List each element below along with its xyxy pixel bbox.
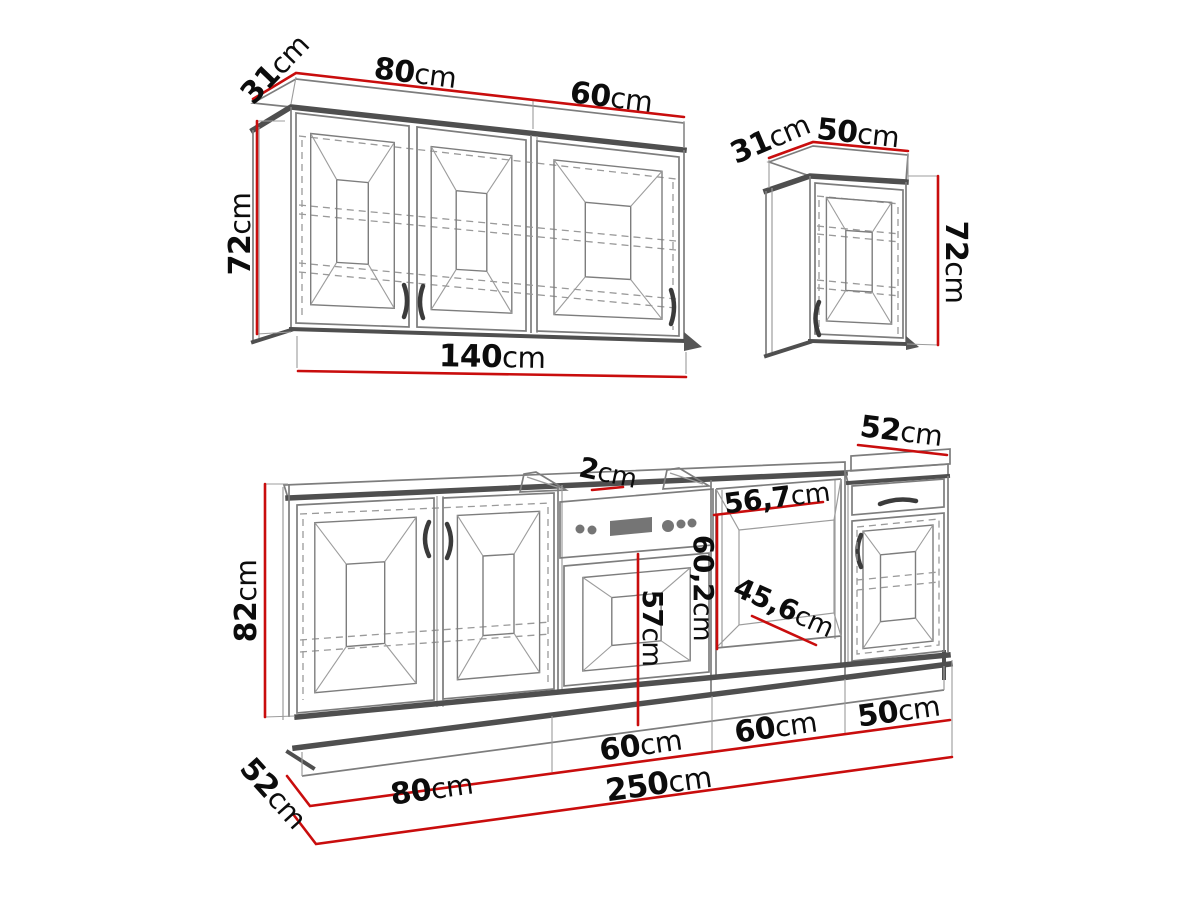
panel-line	[554, 277, 585, 315]
dim-label-oven-door-height: 57cm	[636, 589, 669, 666]
panel-line	[583, 646, 612, 672]
dim-label-wall-triple-right-width: 60cm	[568, 75, 654, 120]
dim-label-base-height: 82cm	[229, 560, 264, 643]
wall-single-dimensions: 31cm 50cm 72cm	[725, 107, 973, 345]
dim-label-section-2: 60cm	[597, 723, 684, 769]
base-double-door-1	[297, 498, 434, 713]
wall-triple-door-gap	[409, 125, 417, 327]
panel-line	[815, 183, 903, 338]
oven-knob-icon	[588, 526, 597, 535]
panel-line	[583, 578, 612, 598]
dim-label-wall-single-width: 50cm	[815, 112, 901, 155]
wall-triple-dimensions: 31cm 80cm 60cm 72cm 140cm	[223, 27, 686, 377]
panel-line	[514, 633, 540, 672]
panel-line	[311, 134, 395, 309]
wall-single-shelf-1	[817, 226, 900, 242]
wall-cabinet-triple	[253, 79, 702, 351]
dim-label-wall-triple-total: 140cm	[439, 338, 546, 376]
kitchen-cabinet-dimension-diagram: 31cm 80cm 60cm 72cm 140cm 31cm 50cm 72cm	[0, 0, 1200, 900]
dim-label-section-4: 50cm	[855, 689, 942, 735]
dim-label-total-width: 250cm	[603, 759, 714, 809]
plinth-left-side	[288, 752, 313, 768]
panel-line	[457, 515, 483, 556]
dim-label-worktop-thickness: 2cm	[576, 451, 640, 495]
dim-label-wall-single-height: 72cm	[938, 221, 973, 304]
oven-display	[610, 517, 652, 536]
wall-triple-door-2	[417, 127, 526, 331]
wall-single-shelf-2	[817, 280, 900, 296]
panel-line	[826, 198, 845, 231]
wall-triple-bottom-corner-wedge	[684, 332, 702, 351]
panel-line	[483, 554, 514, 636]
oven-knob-icon	[662, 520, 674, 532]
panel-line	[431, 147, 456, 191]
wall-triple-door-1	[296, 113, 409, 327]
ext-lines-height	[907, 176, 938, 345]
ext-lines-height	[257, 121, 291, 334]
wall-single-bottom-corner-wedge	[906, 336, 919, 350]
drawer-unit	[845, 449, 950, 678]
panel-line	[852, 479, 944, 515]
kitchen-dimension-diagram-page: 31cm 80cm 60cm 72cm 140cm 31cm 50cm 72cm	[0, 0, 1200, 900]
dim-label-niche-height: 60,2cm	[687, 535, 720, 641]
panel-line	[337, 180, 369, 265]
panel-line	[315, 647, 347, 693]
dim-label-niche-diagonal: 45,6cm	[729, 571, 839, 644]
panel-line	[457, 636, 483, 680]
base-cabinet-run	[283, 449, 950, 776]
dim-label-niche-width: 56,7cm	[722, 475, 831, 521]
panel-line	[863, 525, 933, 649]
panel-line	[443, 493, 554, 699]
dim-label-wall-triple-height: 72cm	[223, 193, 258, 276]
base-cabinet-double	[297, 493, 554, 713]
panel-line	[514, 511, 540, 554]
dim-label-wall-triple-depth: 31cm	[234, 27, 317, 111]
panel-line	[585, 202, 630, 279]
drawer-front	[852, 479, 944, 515]
panel-line	[631, 280, 662, 320]
panel-line	[487, 156, 512, 194]
panel-line	[385, 643, 417, 683]
panel-line	[368, 143, 394, 183]
wall-single-bottom-edge	[810, 341, 906, 344]
panel-line	[916, 525, 934, 552]
panel-line	[311, 134, 337, 180]
drawer-handle-icon	[880, 500, 916, 504]
dim-label-section-1: 80cm	[388, 767, 475, 813]
ext-lines-base-height	[265, 484, 295, 717]
door-handle-icon	[425, 522, 429, 556]
drawer-unit-door	[852, 513, 944, 661]
panel-line	[311, 262, 337, 304]
door-handle-icon	[816, 302, 820, 335]
wall-single-door	[815, 183, 903, 338]
oven-knob-icon	[677, 520, 686, 529]
panel-line	[863, 531, 881, 555]
panel-line	[346, 562, 384, 647]
panel-line	[417, 127, 526, 331]
door-handle-icon	[447, 524, 451, 558]
panel-line	[826, 290, 845, 321]
panel-line	[863, 622, 881, 649]
panel-line	[916, 618, 934, 641]
base-double-door-gap	[437, 496, 443, 707]
door-handle-icon	[404, 285, 407, 317]
panel-line	[368, 264, 394, 308]
panel-line	[631, 171, 662, 206]
panel-line	[554, 160, 585, 202]
panel-line	[872, 292, 891, 324]
panel-line	[872, 202, 891, 232]
base-double-door-2	[443, 493, 554, 699]
panel-line	[846, 230, 872, 292]
wall-cabinet-single	[766, 146, 919, 356]
oven-knob-icon	[688, 519, 697, 528]
dim-label-section-3: 60cm	[732, 705, 819, 751]
drawer-unit-shelf	[857, 572, 939, 590]
door-handle-icon	[420, 286, 423, 318]
panel-line	[385, 517, 417, 562]
door-handle-icon	[858, 535, 862, 567]
oven-knob-icon	[576, 525, 585, 534]
panel-line	[315, 523, 347, 565]
